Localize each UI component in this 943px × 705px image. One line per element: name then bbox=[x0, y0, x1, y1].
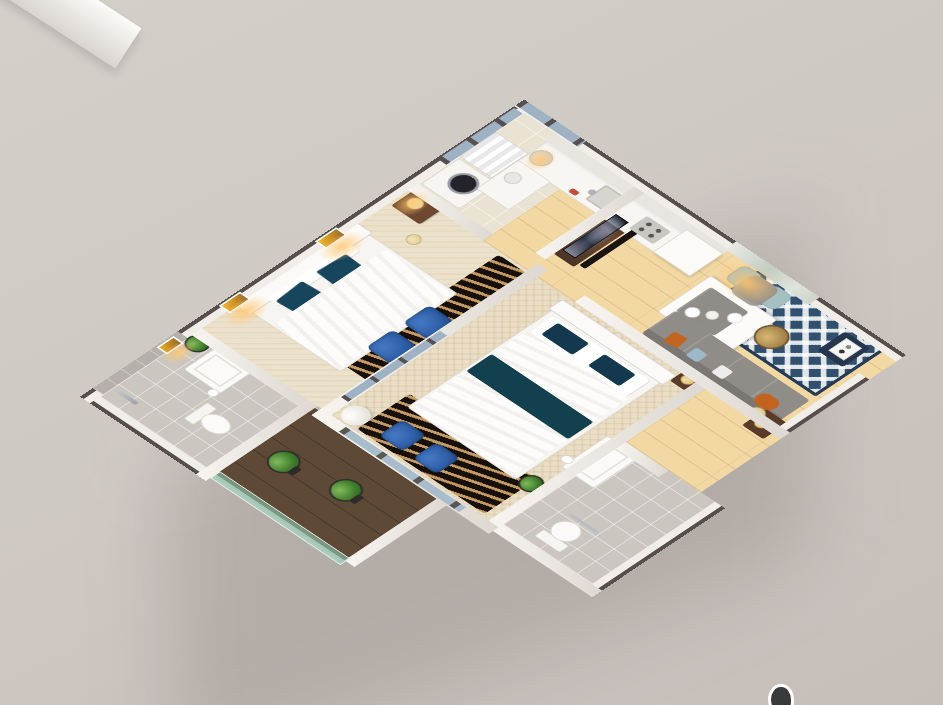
cursor-icon bbox=[768, 684, 794, 705]
floorplan-render-scene bbox=[0, 0, 943, 705]
background-wall-fragment bbox=[0, 0, 141, 68]
